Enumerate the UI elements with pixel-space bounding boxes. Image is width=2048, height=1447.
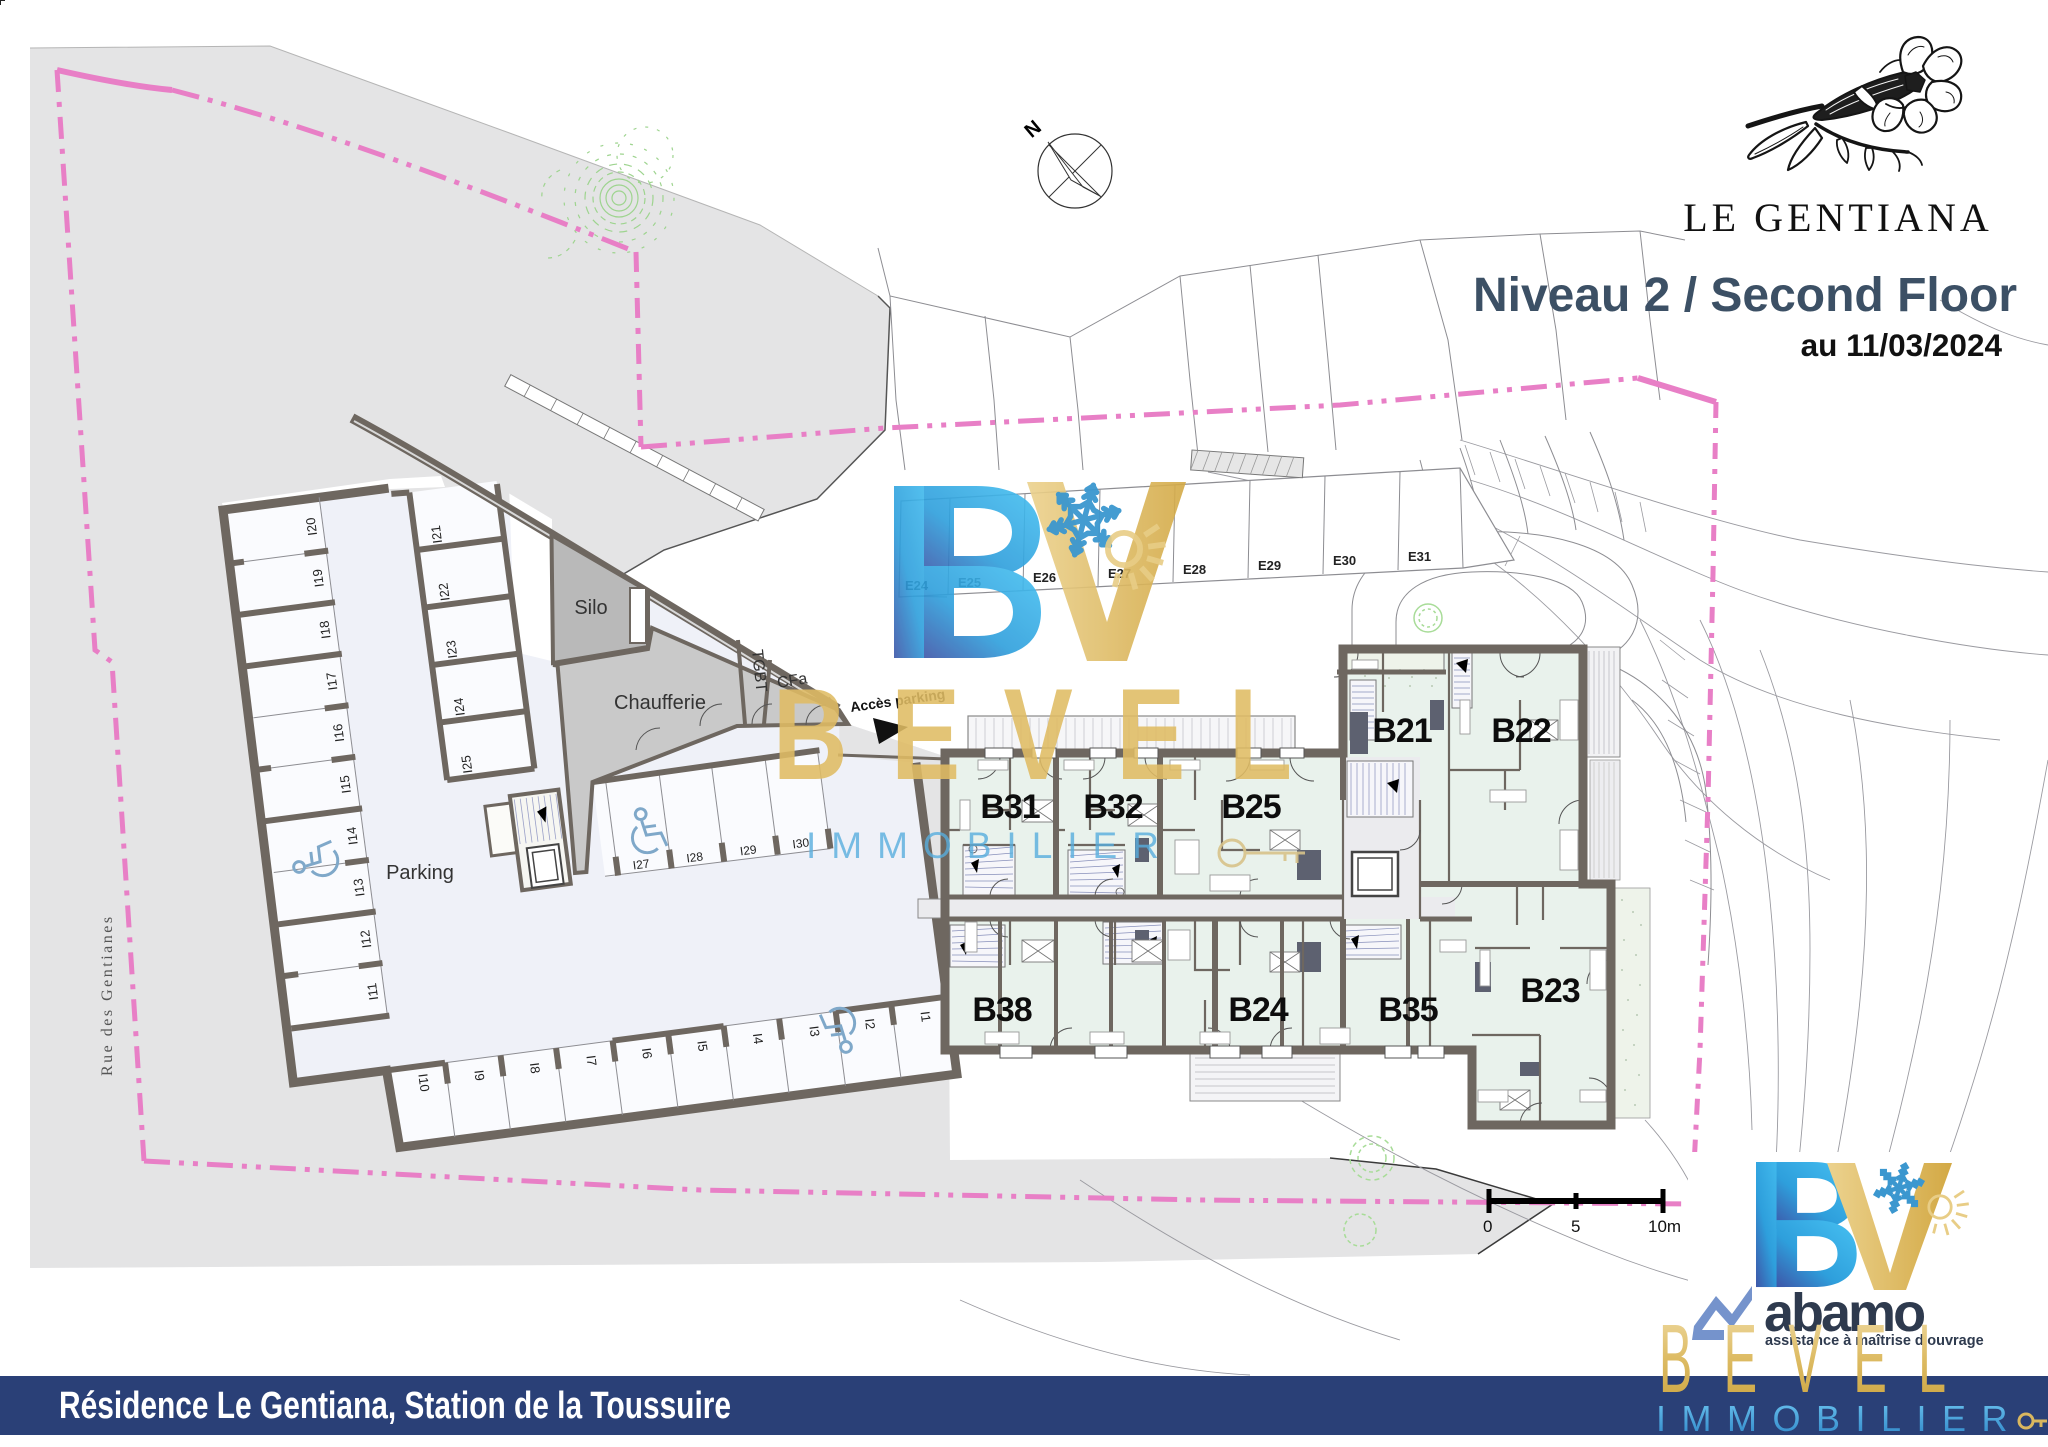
- svg-text:I16: I16: [330, 723, 347, 743]
- svg-text:I5: I5: [694, 1040, 710, 1053]
- svg-text:I24: I24: [451, 697, 468, 717]
- svg-text:0: 0: [1483, 1217, 1492, 1236]
- svg-text:I4: I4: [750, 1032, 766, 1045]
- svg-text:I27: I27: [632, 856, 651, 872]
- svg-text:I6: I6: [639, 1047, 655, 1060]
- svg-text:I2: I2: [862, 1018, 878, 1031]
- svg-text:B23: B23: [1520, 972, 1579, 1010]
- svg-text:I25: I25: [458, 754, 475, 774]
- svg-text:E31: E31: [1408, 549, 1431, 564]
- svg-text:Silo: Silo: [574, 597, 607, 619]
- svg-text:E30: E30: [1333, 553, 1356, 568]
- svg-text:5: 5: [1571, 1217, 1580, 1236]
- svg-text:B35: B35: [1378, 991, 1437, 1029]
- svg-text:I23: I23: [443, 639, 460, 659]
- svg-text:I29: I29: [739, 842, 758, 858]
- svg-text:I19: I19: [310, 568, 327, 588]
- svg-text:I21: I21: [428, 524, 445, 544]
- svg-text:I12: I12: [357, 929, 374, 949]
- svg-text:B21: B21: [1372, 712, 1431, 750]
- svg-text:I1: I1: [917, 1010, 933, 1023]
- svg-text:B38: B38: [972, 991, 1031, 1029]
- svg-text:E29: E29: [1258, 558, 1281, 573]
- svg-text:Résidence Le Gentiana, Station: Résidence Le Gentiana, Station de la Tou…: [59, 1385, 731, 1427]
- svg-text:I28: I28: [686, 849, 705, 865]
- svg-text:I17: I17: [323, 671, 340, 691]
- svg-text:E28: E28: [1183, 562, 1206, 577]
- svg-text:IMMOBILIER: IMMOBILIER: [1656, 1398, 2023, 1439]
- svg-text:IMMOBILIER: IMMOBILIER: [806, 825, 1174, 866]
- svg-text:E26: E26: [1033, 570, 1056, 585]
- svg-text:10m: 10m: [1648, 1217, 1681, 1236]
- svg-text:LE GENTIANA: LE GENTIANA: [1683, 195, 1993, 240]
- svg-text:Chaufferie: Chaufferie: [614, 692, 706, 714]
- svg-text:I8: I8: [527, 1062, 543, 1075]
- svg-text:I9: I9: [471, 1069, 487, 1082]
- svg-text:B22: B22: [1491, 712, 1550, 750]
- svg-text:au 11/03/2024: au 11/03/2024: [1801, 327, 2003, 363]
- svg-text:Niveau 2 / Second Floor: Niveau 2 / Second Floor: [1473, 269, 2017, 322]
- svg-text:I11: I11: [364, 982, 381, 1001]
- svg-text:I22: I22: [435, 582, 452, 602]
- svg-text:I14: I14: [344, 826, 361, 846]
- svg-text:I15: I15: [337, 774, 354, 794]
- svg-text:I20: I20: [303, 517, 320, 537]
- svg-text:Parking: Parking: [386, 862, 454, 884]
- svg-text:BEVEL: BEVEL: [773, 661, 1336, 807]
- svg-text:I13: I13: [350, 878, 367, 898]
- svg-text:I7: I7: [583, 1054, 599, 1067]
- svg-text:Rue des Gentianes: Rue des Gentianes: [99, 914, 116, 1076]
- svg-text:I3: I3: [806, 1025, 822, 1038]
- svg-text:I10: I10: [415, 1073, 432, 1093]
- svg-text:I18: I18: [316, 620, 333, 640]
- svg-text:B24: B24: [1228, 991, 1288, 1029]
